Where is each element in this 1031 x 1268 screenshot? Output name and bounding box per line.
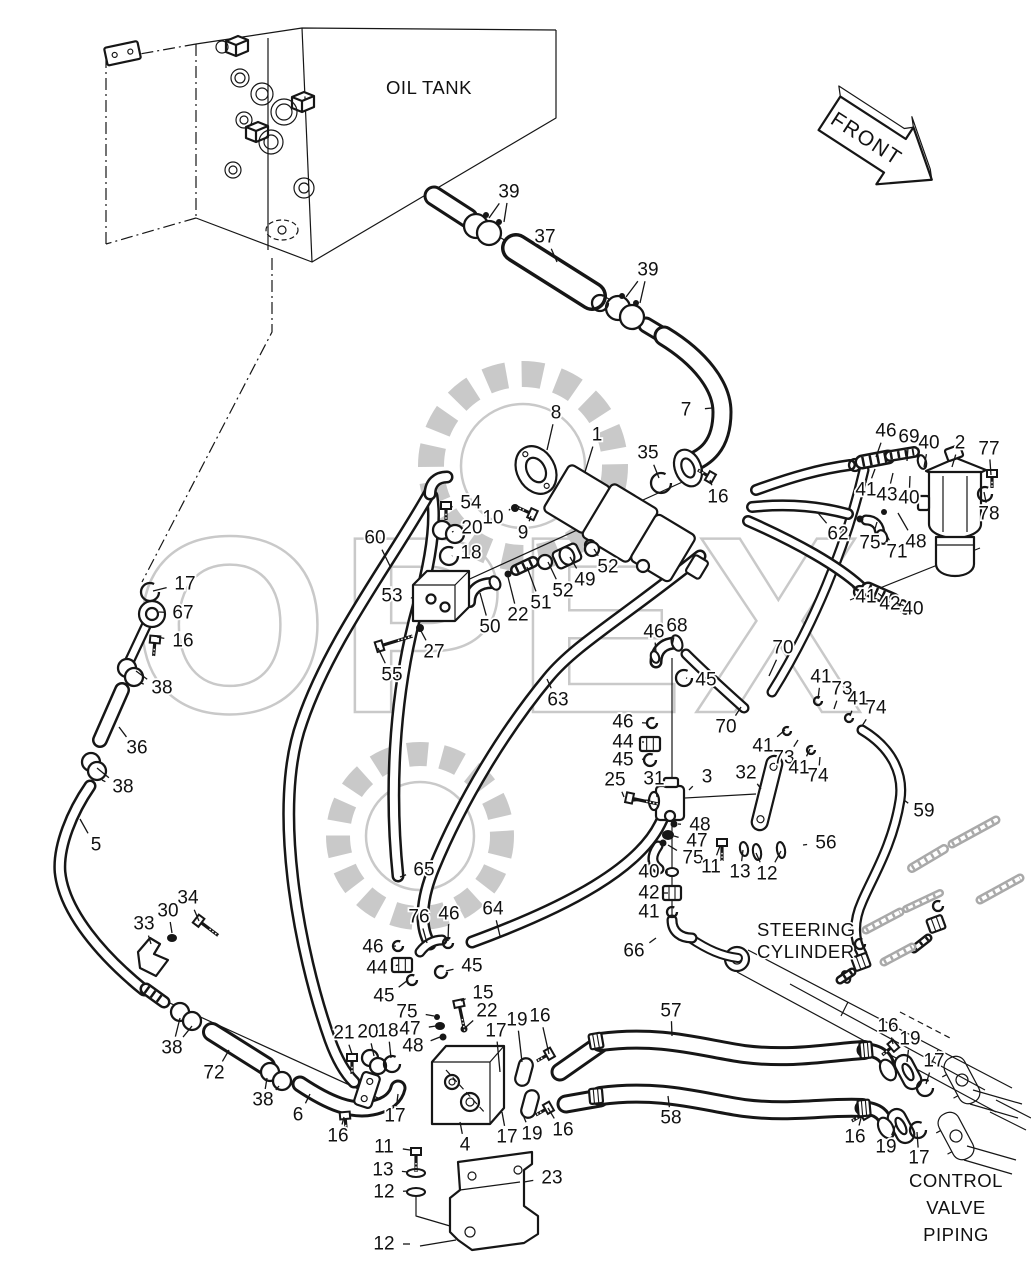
leader-line <box>705 408 712 409</box>
hydraulic-piping-diagram: OPEX FRONT <box>0 0 1031 1268</box>
leader-line <box>524 1180 533 1182</box>
ring-fitting <box>620 305 644 329</box>
steering-unit-part2 <box>918 445 986 576</box>
part-label: 16 <box>877 1016 898 1037</box>
part-label: 22 <box>476 1001 497 1022</box>
o-ring <box>933 901 943 911</box>
leader-line <box>585 447 593 472</box>
dark-washer <box>435 1022 445 1030</box>
part-label: 58 <box>660 1108 681 1129</box>
part-label: 45 <box>695 670 716 691</box>
part-label: 16 <box>844 1127 865 1148</box>
o-ring <box>917 1080 933 1096</box>
part-label: 60 <box>364 528 385 549</box>
leader-line <box>671 1021 672 1036</box>
part-label: 65 <box>413 860 434 881</box>
part-label: 9 <box>518 523 529 544</box>
part-label: 41 <box>855 480 876 501</box>
small-part-dot <box>671 821 678 828</box>
part-label: 40 <box>638 862 659 883</box>
part-label: 18 <box>460 543 481 564</box>
part-label: 17 <box>384 1106 405 1127</box>
part-label: 51 <box>530 593 551 614</box>
small-part-dot <box>881 509 887 515</box>
watermark: OPEX <box>132 374 872 918</box>
parts-diagram-page: OPEX FRONT <box>0 0 1031 1268</box>
leader-line <box>119 727 126 737</box>
part-label: 11 <box>701 857 721 878</box>
leader-line <box>170 922 172 933</box>
part-label: 32 <box>735 763 756 784</box>
part-label: 48 <box>905 532 926 553</box>
part-label: 13 <box>729 862 750 883</box>
part-label: 45 <box>373 986 394 1007</box>
part-label: 48 <box>402 1036 423 1057</box>
part-label: 2 <box>955 433 966 454</box>
part-label: 4 <box>460 1135 471 1156</box>
part-label: 56 <box>815 833 836 854</box>
part-label: 16 <box>552 1120 573 1141</box>
part-label: 59 <box>913 801 934 822</box>
ring-fitting <box>125 668 143 686</box>
part-label: 7 <box>681 400 692 421</box>
dark-washer <box>662 830 674 840</box>
small-part-dot <box>416 624 424 632</box>
part-label: 35 <box>637 443 658 464</box>
leader-line <box>452 531 454 532</box>
split-flange-19a <box>514 1057 535 1088</box>
leader-line <box>674 836 679 837</box>
part-label: 17 <box>174 574 195 595</box>
part-label: 74 <box>807 766 829 787</box>
hex-fitting <box>857 1100 870 1117</box>
banjo-fitting-part67 <box>139 601 165 627</box>
part-label: 46 <box>438 904 459 925</box>
part-label: 12 <box>373 1234 394 1255</box>
part-label: 27 <box>423 642 444 663</box>
part-label: 66 <box>623 941 644 962</box>
part-label: 71 <box>886 542 907 563</box>
dark-washer <box>167 934 177 942</box>
part-label: 16 <box>327 1126 348 1147</box>
leader-line <box>689 786 693 790</box>
leader-line <box>655 643 656 652</box>
part-label: 38 <box>161 1038 182 1059</box>
part-label: 76 <box>408 907 429 928</box>
leader-line <box>431 1037 440 1041</box>
part-label: 1 <box>592 425 603 446</box>
part-label: 75 <box>859 533 880 554</box>
part-label: 63 <box>547 690 568 711</box>
part-label: 72 <box>203 1063 224 1084</box>
part-label: 78 <box>978 504 999 525</box>
part-label: 19 <box>506 1010 527 1031</box>
part-label: 41 <box>788 758 809 779</box>
part-label: 41 <box>855 587 876 608</box>
part-label: 49 <box>574 570 595 591</box>
part-label: 22 <box>507 605 528 626</box>
o-ring <box>407 975 417 985</box>
part-label: 16 <box>529 1006 550 1027</box>
leader-line <box>626 281 638 297</box>
part-label: 3 <box>702 767 713 788</box>
part-label: 45 <box>461 956 482 977</box>
part-label: 54 <box>460 493 482 514</box>
leader-line <box>547 424 553 450</box>
hex-fitting <box>640 737 660 751</box>
leader-line <box>859 1118 861 1125</box>
leader-line <box>429 1026 436 1027</box>
part-label: 30 <box>157 901 178 922</box>
part-label: 46 <box>643 622 664 643</box>
part-label: 39 <box>498 182 519 203</box>
leader-line <box>448 924 449 941</box>
leader-line <box>872 469 875 478</box>
part-label: 70 <box>715 717 736 738</box>
part-label: 16 <box>707 487 728 508</box>
washer <box>752 843 763 860</box>
part-label: 21 <box>333 1023 354 1044</box>
leader-line <box>403 1149 410 1150</box>
hex-fitting <box>392 958 412 972</box>
part-label: 41 <box>638 902 659 923</box>
small-part-dot <box>857 516 864 523</box>
part-label: 64 <box>482 899 504 920</box>
steering-cylinder-label-line1: STEERING <box>757 919 856 940</box>
oil-tank-label: OIL TANK <box>386 77 472 98</box>
part-label: 74 <box>865 698 887 719</box>
small-part-dot <box>440 1034 447 1041</box>
washer <box>407 1188 425 1196</box>
part-label: 50 <box>479 617 500 638</box>
part-label: 10 <box>482 508 503 529</box>
leader-line <box>509 509 510 510</box>
part-label: 19 <box>521 1124 542 1145</box>
leader-line <box>466 1020 473 1027</box>
part-label: 38 <box>112 777 133 798</box>
leader-line <box>80 819 88 833</box>
steering-cylinder-label-line2: CYLINDER <box>757 941 855 962</box>
leader-line <box>452 506 453 507</box>
part-label: 12 <box>373 1182 394 1203</box>
part-label: 31 <box>643 769 664 790</box>
part-label: 46 <box>875 421 896 442</box>
part-label: 12 <box>756 864 777 885</box>
part-label: 17 <box>923 1051 944 1072</box>
bolt <box>987 470 997 488</box>
part-label: 20 <box>461 518 482 539</box>
hex-fitting <box>589 1088 603 1104</box>
bolt <box>193 915 221 940</box>
small-part-dot <box>496 219 502 225</box>
part-label: 42 <box>638 883 659 904</box>
part-label: 33 <box>133 914 154 935</box>
control-valve-label-line3: PIPING <box>923 1224 989 1245</box>
leader-line <box>102 780 105 782</box>
leader-line <box>489 203 499 218</box>
ring-fitting <box>273 1072 291 1090</box>
front-arrow: FRONT <box>805 74 955 208</box>
bolt <box>534 1048 555 1066</box>
part-label: 5 <box>91 835 102 856</box>
leader-line <box>399 980 408 987</box>
part-label: 43 <box>876 485 897 506</box>
part-label: 39 <box>637 260 658 281</box>
part-label: 41 <box>810 667 831 688</box>
small-part-dot <box>434 1014 440 1020</box>
part-label: 34 <box>177 888 199 909</box>
ring-fitting <box>88 762 106 780</box>
part-label: 52 <box>597 557 618 578</box>
part-label: 17 <box>496 1127 517 1148</box>
part-label: 53 <box>381 586 402 607</box>
ring-fitting <box>183 1012 201 1030</box>
leader-line <box>890 473 893 484</box>
bracket-part33 <box>138 938 168 976</box>
part-label: 44 <box>366 958 388 979</box>
part-label: 13 <box>372 1160 393 1181</box>
part-label: 40 <box>902 599 923 620</box>
hex-fitting <box>859 1042 872 1059</box>
part-label: 45 <box>612 750 633 771</box>
part-label: 52 <box>552 581 573 602</box>
leader-line <box>446 969 453 971</box>
part-label: 77 <box>978 439 999 460</box>
leader-line <box>518 1031 522 1062</box>
leader-line <box>622 792 624 797</box>
part-label: 46 <box>362 937 383 958</box>
hex-fitting <box>588 1032 603 1049</box>
part-label: 20 <box>357 1022 378 1043</box>
bracket-part23 <box>450 1152 538 1250</box>
part-label: 17 <box>485 1021 506 1042</box>
leader-line <box>504 203 507 222</box>
junction-block-part53 <box>413 571 469 621</box>
part-label: 70 <box>772 638 793 659</box>
leader-line <box>402 1171 408 1172</box>
o-ring <box>435 966 447 978</box>
leader-line <box>349 1045 352 1054</box>
part-label: 40 <box>918 433 939 454</box>
control-valve-label-line2: VALVE <box>926 1197 985 1218</box>
small-part-dot <box>633 300 639 306</box>
leader-line <box>898 513 908 530</box>
part-label: 19 <box>875 1137 896 1158</box>
part-label: 41 <box>752 736 773 757</box>
leader-line <box>396 965 398 966</box>
part-label: 37 <box>534 227 555 248</box>
part-label: 6 <box>293 1105 304 1126</box>
part-label: 36 <box>126 738 147 759</box>
small-part-dot <box>619 293 625 299</box>
leader-line <box>640 281 645 303</box>
part-label: 23 <box>541 1168 562 1189</box>
leader-line <box>819 757 820 765</box>
leader-line <box>717 846 720 855</box>
leader-line <box>917 1132 918 1148</box>
leader-line <box>426 1014 434 1016</box>
part-label: 67 <box>172 603 193 624</box>
part-label: 57 <box>660 1001 681 1022</box>
small-part-dot <box>483 212 489 218</box>
leader-line <box>502 1112 505 1126</box>
small-part-dot <box>660 840 667 847</box>
ring-fitting <box>477 221 501 245</box>
part-label: 40 <box>898 488 919 509</box>
control-valve-label-line1: CONTROL <box>909 1170 1003 1191</box>
leader-line <box>649 938 656 943</box>
part-label: 19 <box>899 1029 920 1050</box>
part-label: 8 <box>551 403 562 424</box>
washer <box>776 841 787 858</box>
part-label: 55 <box>381 665 402 686</box>
leader-line <box>803 844 807 845</box>
part-label: 25 <box>604 770 625 791</box>
part-label: 38 <box>252 1090 273 1111</box>
part-label: 68 <box>666 616 687 637</box>
valve-block-part4 <box>432 1046 504 1124</box>
part-label: 62 <box>827 524 848 545</box>
part-label: 38 <box>151 678 172 699</box>
washer <box>739 841 749 856</box>
part-label: 17 <box>908 1148 929 1169</box>
part-label: 16 <box>172 631 193 652</box>
part-label: 18 <box>377 1021 398 1042</box>
part-label: 11 <box>374 1137 394 1158</box>
part-label: 46 <box>612 712 633 733</box>
part-label: 69 <box>898 427 919 448</box>
hex-fitting <box>926 915 946 934</box>
